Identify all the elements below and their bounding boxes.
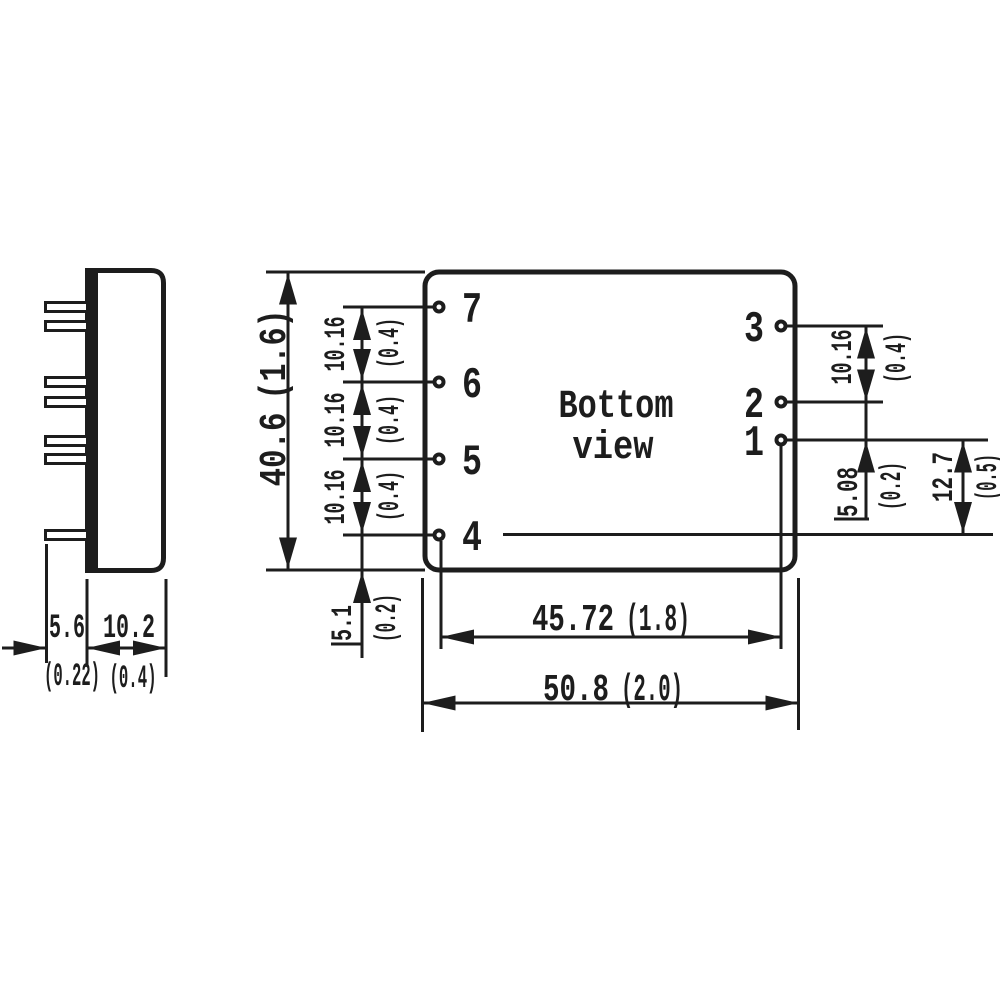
dim-pin1-to-pin4-row-mm: 12.7	[928, 452, 962, 502]
pin5-circle	[435, 455, 444, 464]
pin7-circle	[435, 303, 444, 312]
view-title-line2: view	[573, 426, 654, 471]
dim-pin-span-label: 45.72(1.8)	[532, 599, 690, 642]
dim-pitch-2-1-mm: 5.08	[833, 467, 867, 517]
side-case-outline	[96, 271, 164, 571]
dim-pitch-5-4-mm: 10.16	[320, 470, 354, 525]
pin6-label: 6	[462, 361, 482, 411]
side-pin-row-3	[46, 378, 88, 387]
dim-case-depth-mm: 10.2	[103, 610, 155, 648]
side-pin-row-2	[46, 322, 88, 331]
side-pin-row-1	[46, 303, 88, 312]
dim-pitch-7-6-inch: (0.4)	[374, 318, 408, 368]
side-pin-row-7	[46, 531, 88, 540]
pin3-circle	[777, 322, 786, 331]
dim-pitch-7-6-mm: 10.16	[320, 317, 354, 372]
dim-pitch-5-4-inch: (0.4)	[374, 471, 408, 521]
side-case-left-wall	[85, 268, 98, 573]
technical-drawing-canvas: 5.6 10.2 (0.22) (0.4) 40.6(1.6)	[0, 0, 1000, 1000]
pin4-circle	[435, 531, 444, 540]
dim-pin-length-mm: 5.6	[49, 610, 85, 648]
pin5-label: 5	[462, 438, 482, 488]
dim-pin-length-inch: (0.22)	[44, 658, 100, 695]
dim-pin1-to-pin4-row-inch: (0.5)	[972, 454, 1000, 500]
dim-pitch-3-2-mm: 10.16	[827, 330, 861, 385]
dim-pin4-to-edge-mm: 5.1	[327, 605, 361, 641]
pin7-label: 7	[462, 286, 482, 336]
side-pin-row-4	[46, 398, 88, 407]
side-pin-row-5	[46, 437, 88, 446]
pin4-label: 4	[462, 514, 482, 564]
side-pin-row-6	[46, 455, 88, 464]
dim-pitch-2-1-inch: (0.2)	[876, 462, 910, 510]
dim-case-depth-inch: (0.4)	[110, 660, 157, 697]
pin1-circle	[777, 436, 786, 445]
pin6-circle	[435, 378, 444, 387]
dim-pin4-to-edge-inch: (0.2)	[371, 594, 405, 642]
view-title-line1: Bottom	[559, 385, 674, 430]
dim-pitch-6-5-inch: (0.4)	[374, 395, 408, 445]
dim-pitch-6-5-mm: 10.16	[320, 393, 354, 448]
pin3-label: 3	[744, 305, 764, 355]
dim-case-height-label: 40.6(1.6)	[254, 310, 297, 487]
dim-pitch-3-2-inch: (0.4)	[881, 333, 915, 383]
dimension-drawing: 5.6 10.2 (0.22) (0.4) 40.6(1.6)	[0, 0, 1000, 1000]
pin1-label: 1	[744, 419, 764, 469]
pin2-circle	[777, 398, 786, 407]
